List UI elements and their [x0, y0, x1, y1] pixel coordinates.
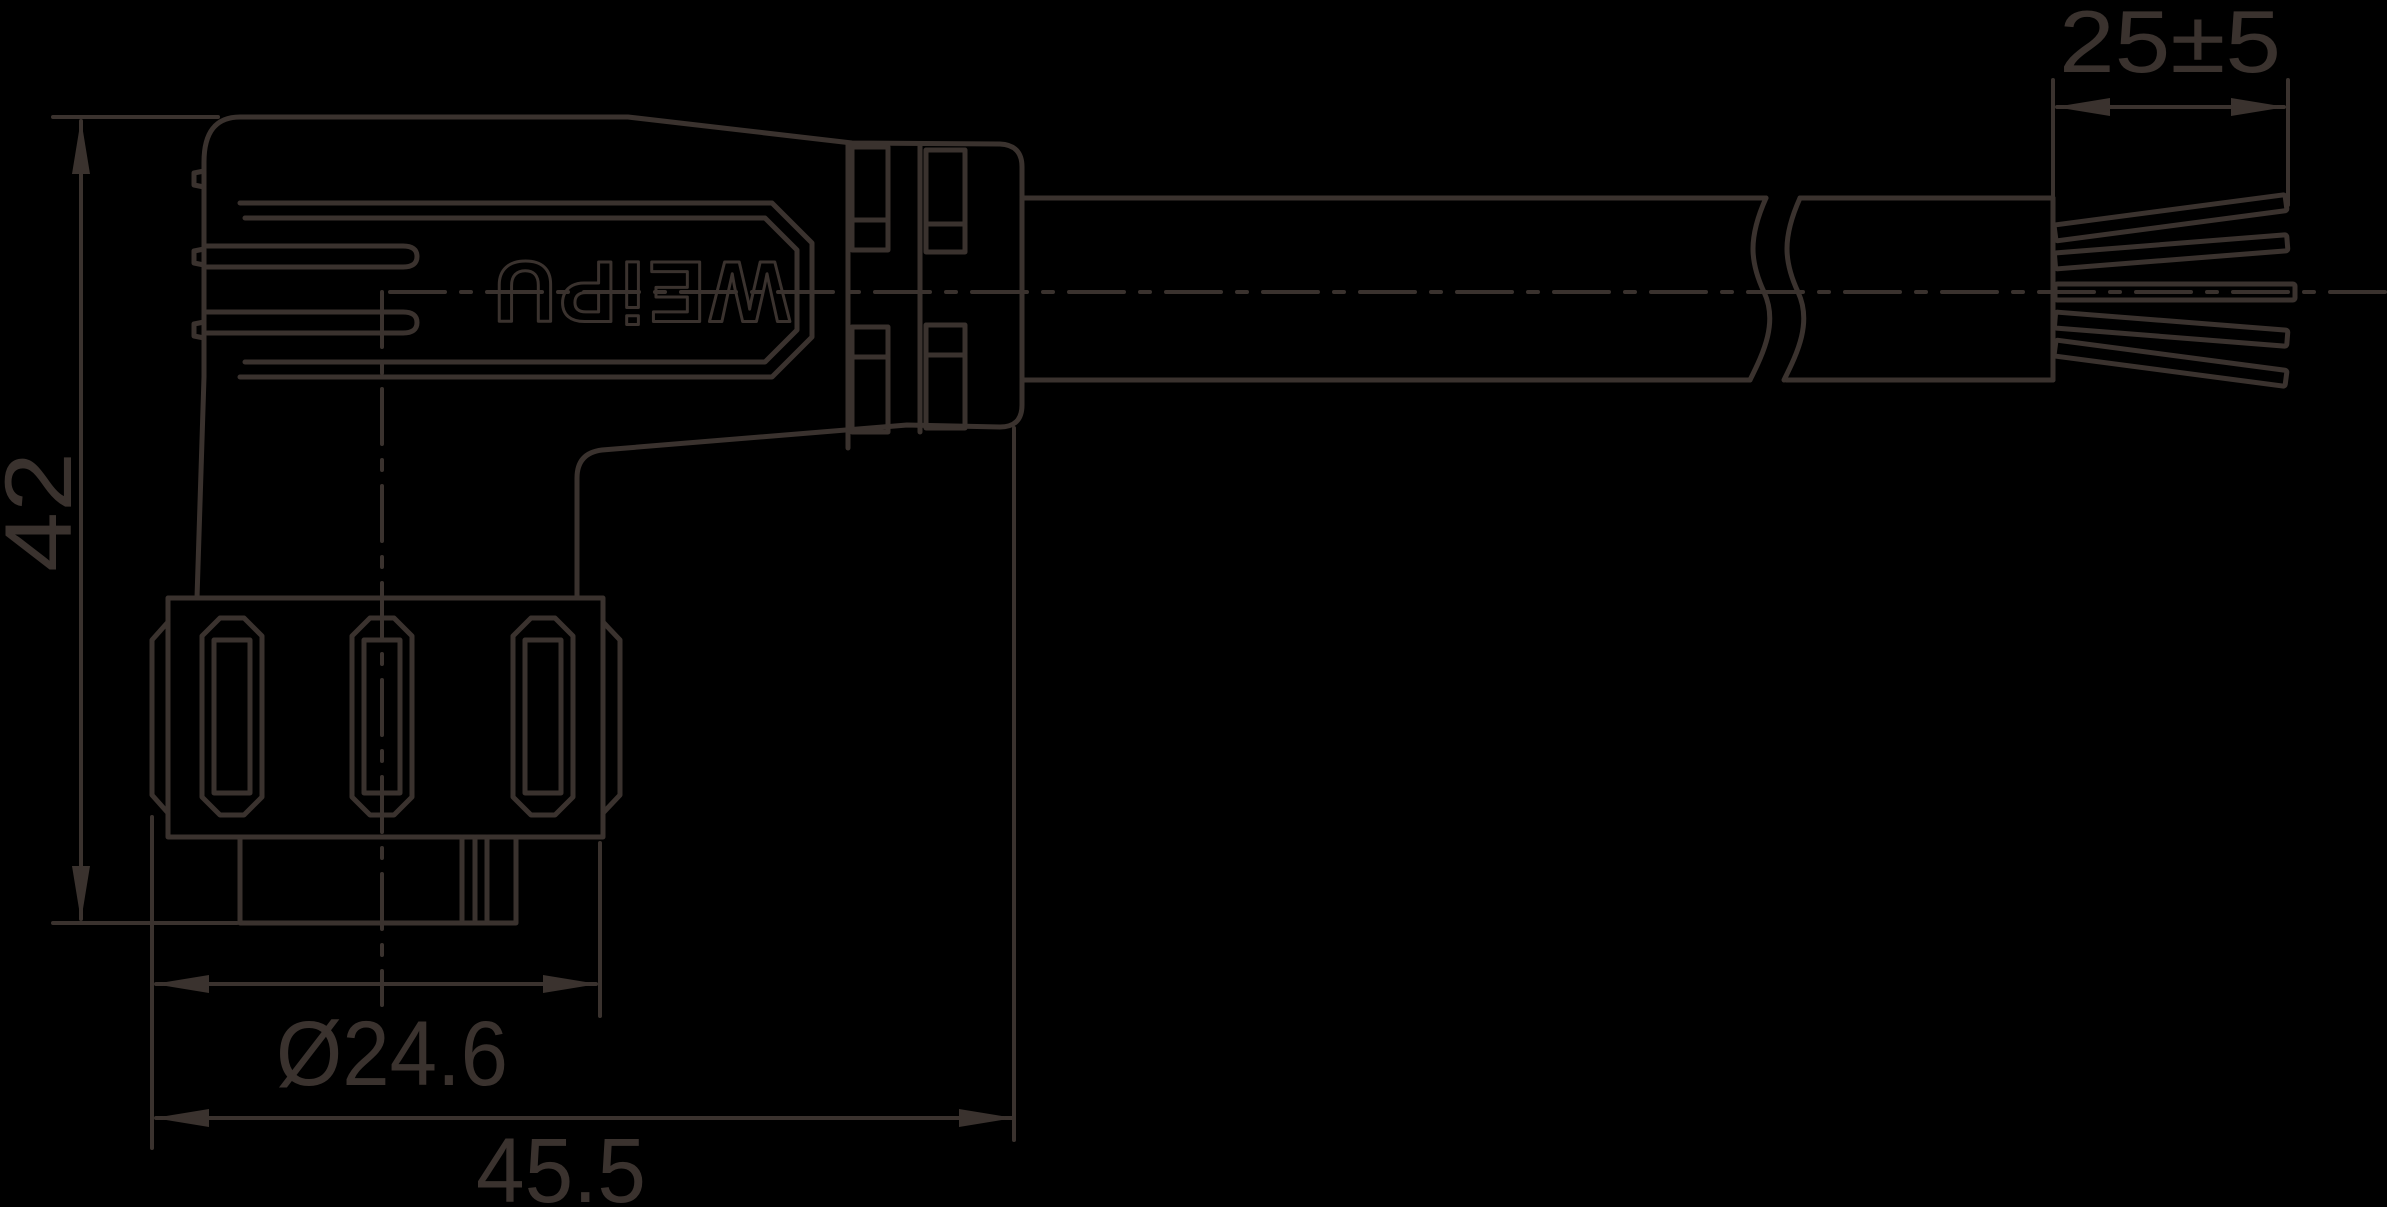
arrowhead-right: [543, 975, 598, 993]
arrowhead-left: [154, 1109, 209, 1127]
connector-face: [240, 837, 516, 923]
wire-lead: [2054, 195, 2287, 241]
centerlines: [382, 292, 2387, 1005]
arrowhead-right: [2231, 98, 2286, 116]
dimensions: 42 25±5 Ø24.6: [0, 0, 2288, 1207]
drawing-root: WEiPU: [0, 0, 2387, 1207]
face-keyway: [462, 837, 487, 920]
clamp-slot: [852, 327, 888, 432]
cable: [1022, 198, 2053, 380]
connector-technical-drawing: WEiPU: [0, 0, 2387, 1207]
coupling-nut: [152, 598, 620, 837]
cable-break-symbol: [1750, 198, 1804, 380]
arrowhead-down: [72, 866, 90, 921]
wire-lead: [2054, 340, 2287, 386]
dimension-label-25-5: 25±5: [2059, 0, 2281, 91]
clamp-slot: [926, 150, 965, 252]
dimension-label-42: 42: [0, 452, 92, 572]
nut-side-lug: [603, 622, 620, 813]
brand-logo-text: WEiPU: [490, 243, 790, 339]
dimension-nut-diameter: Ø24.6: [152, 817, 600, 1148]
nut-outline: [168, 598, 603, 837]
arrowhead-up: [72, 119, 90, 174]
arrowhead-left: [2055, 98, 2110, 116]
clamp-slot: [852, 147, 888, 250]
dimension-label-45-5: 45.5: [476, 1120, 646, 1207]
body-outline: [197, 117, 1022, 598]
wire-lead: [2054, 235, 2288, 269]
cable-clamp: [848, 143, 965, 448]
clamp-slot: [926, 325, 965, 428]
dimension-label-24-6: Ø24.6: [276, 1003, 508, 1105]
nut-grip-lugs: [202, 618, 573, 815]
connector-body: WEiPU: [194, 117, 1022, 598]
wire-lead: [2054, 312, 2288, 346]
finger-slots: [207, 246, 417, 333]
dimension-strip-25: 25±5: [2053, 0, 2288, 205]
arrowhead-left: [154, 975, 209, 993]
arrowhead-right: [959, 1109, 1014, 1127]
